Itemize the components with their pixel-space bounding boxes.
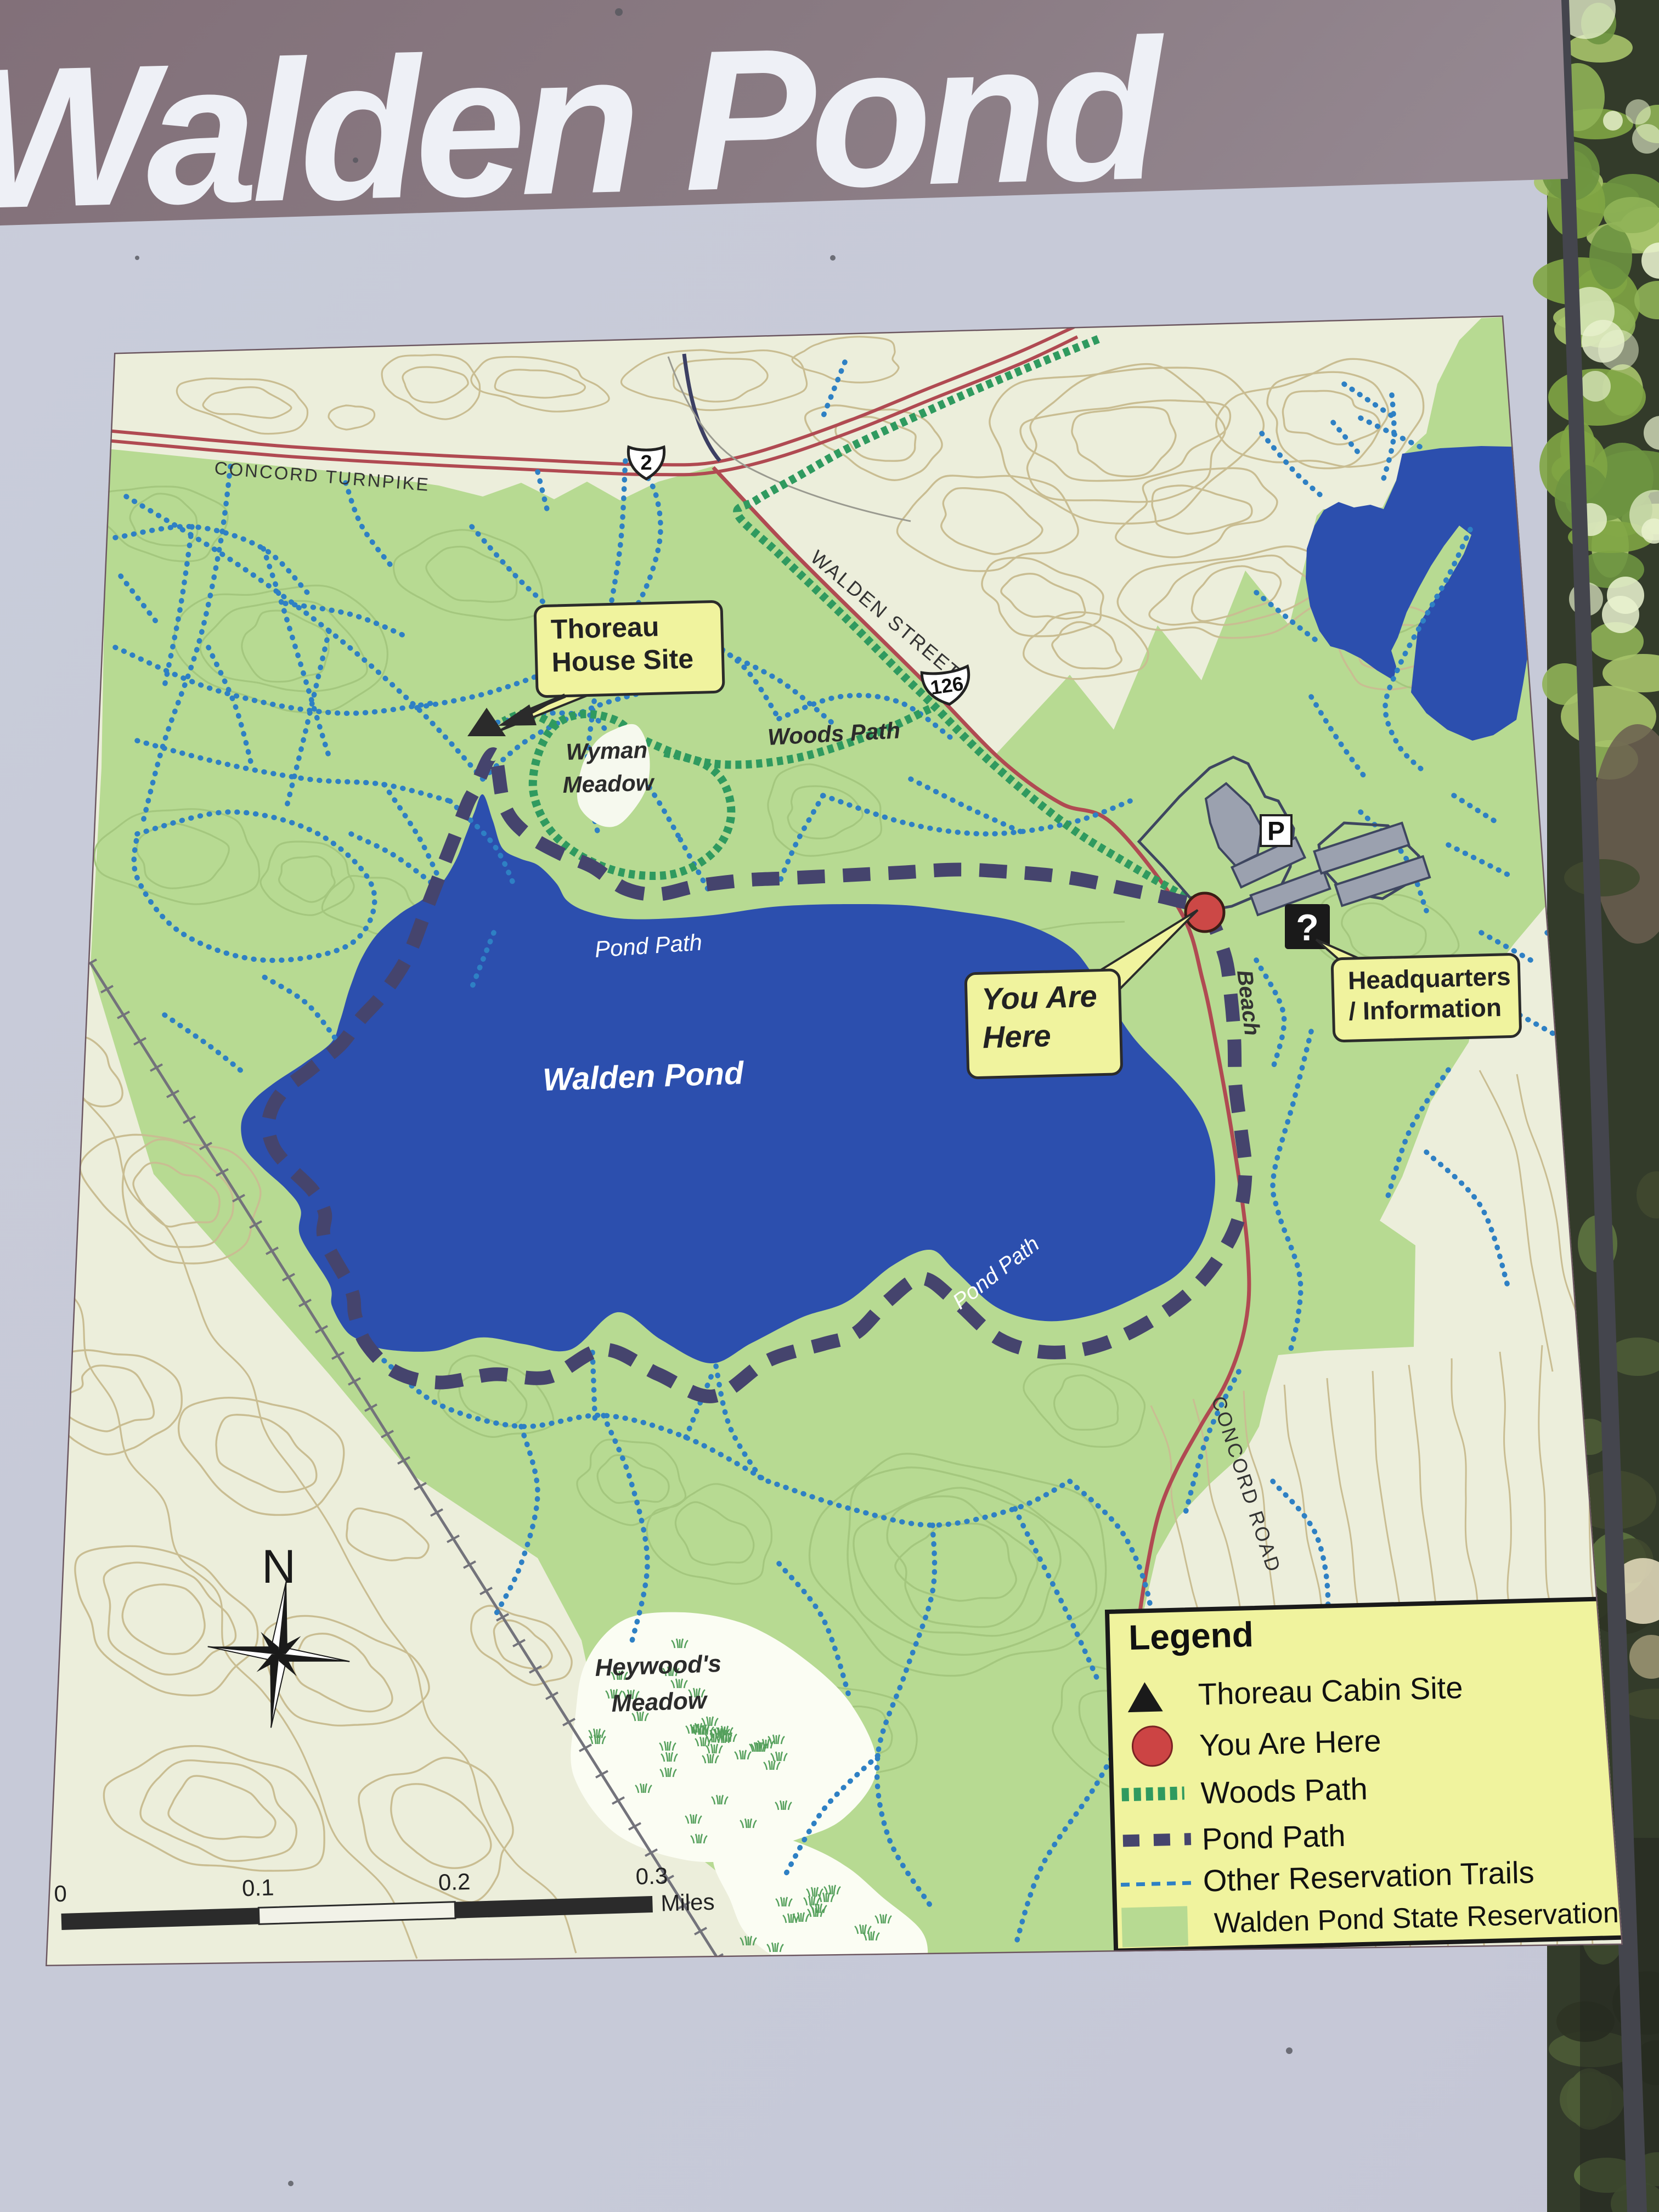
svg-text:N: N	[262, 1541, 296, 1593]
svg-text:/ Information: / Information	[1348, 993, 1502, 1025]
svg-text:0: 0	[54, 1881, 67, 1907]
svg-text:0.2: 0.2	[438, 1869, 471, 1895]
svg-text:P: P	[1267, 817, 1285, 846]
svg-text:Woods Path: Woods Path	[1200, 1771, 1368, 1810]
svg-text:?: ?	[1296, 907, 1319, 949]
svg-text:Meadow: Meadow	[562, 770, 655, 798]
svg-text:2: 2	[640, 452, 652, 475]
svg-text:Miles: Miles	[661, 1889, 715, 1916]
svg-text:House Site: House Site	[551, 643, 694, 678]
svg-text:Walden Pond: Walden Pond	[542, 1055, 745, 1098]
svg-text:Thoreau Cabin Site: Thoreau Cabin Site	[1198, 1670, 1463, 1712]
svg-text:Walden Pond: Walden Pond	[0, 0, 1171, 251]
svg-text:Thoreau: Thoreau	[550, 611, 659, 645]
svg-text:Legend: Legend	[1128, 1615, 1254, 1657]
svg-text:Here: Here	[982, 1018, 1051, 1054]
svg-text:Headquarters: Headquarters	[1347, 962, 1511, 995]
svg-text:Pond Path: Pond Path	[1201, 1818, 1346, 1857]
svg-text:Heywood's: Heywood's	[595, 1650, 722, 1681]
svg-text:126: 126	[929, 672, 964, 699]
svg-text:0.3: 0.3	[635, 1863, 668, 1889]
svg-text:Wyman: Wyman	[566, 737, 648, 765]
svg-text:0.1: 0.1	[241, 1874, 274, 1901]
svg-text:You Are Here: You Are Here	[1199, 1723, 1382, 1763]
svg-text:Meadow: Meadow	[611, 1687, 709, 1717]
svg-text:You Are: You Are	[981, 979, 1097, 1016]
